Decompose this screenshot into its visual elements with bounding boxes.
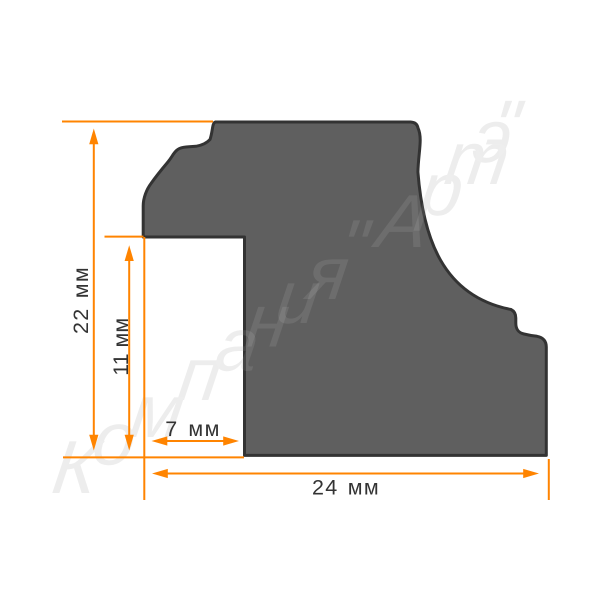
svg-text:22 мм: 22 мм <box>69 266 93 334</box>
svg-text:7 мм: 7 мм <box>165 417 221 441</box>
svg-text:24 мм: 24 мм <box>312 476 380 500</box>
svg-text:11 мм: 11 мм <box>109 318 133 376</box>
